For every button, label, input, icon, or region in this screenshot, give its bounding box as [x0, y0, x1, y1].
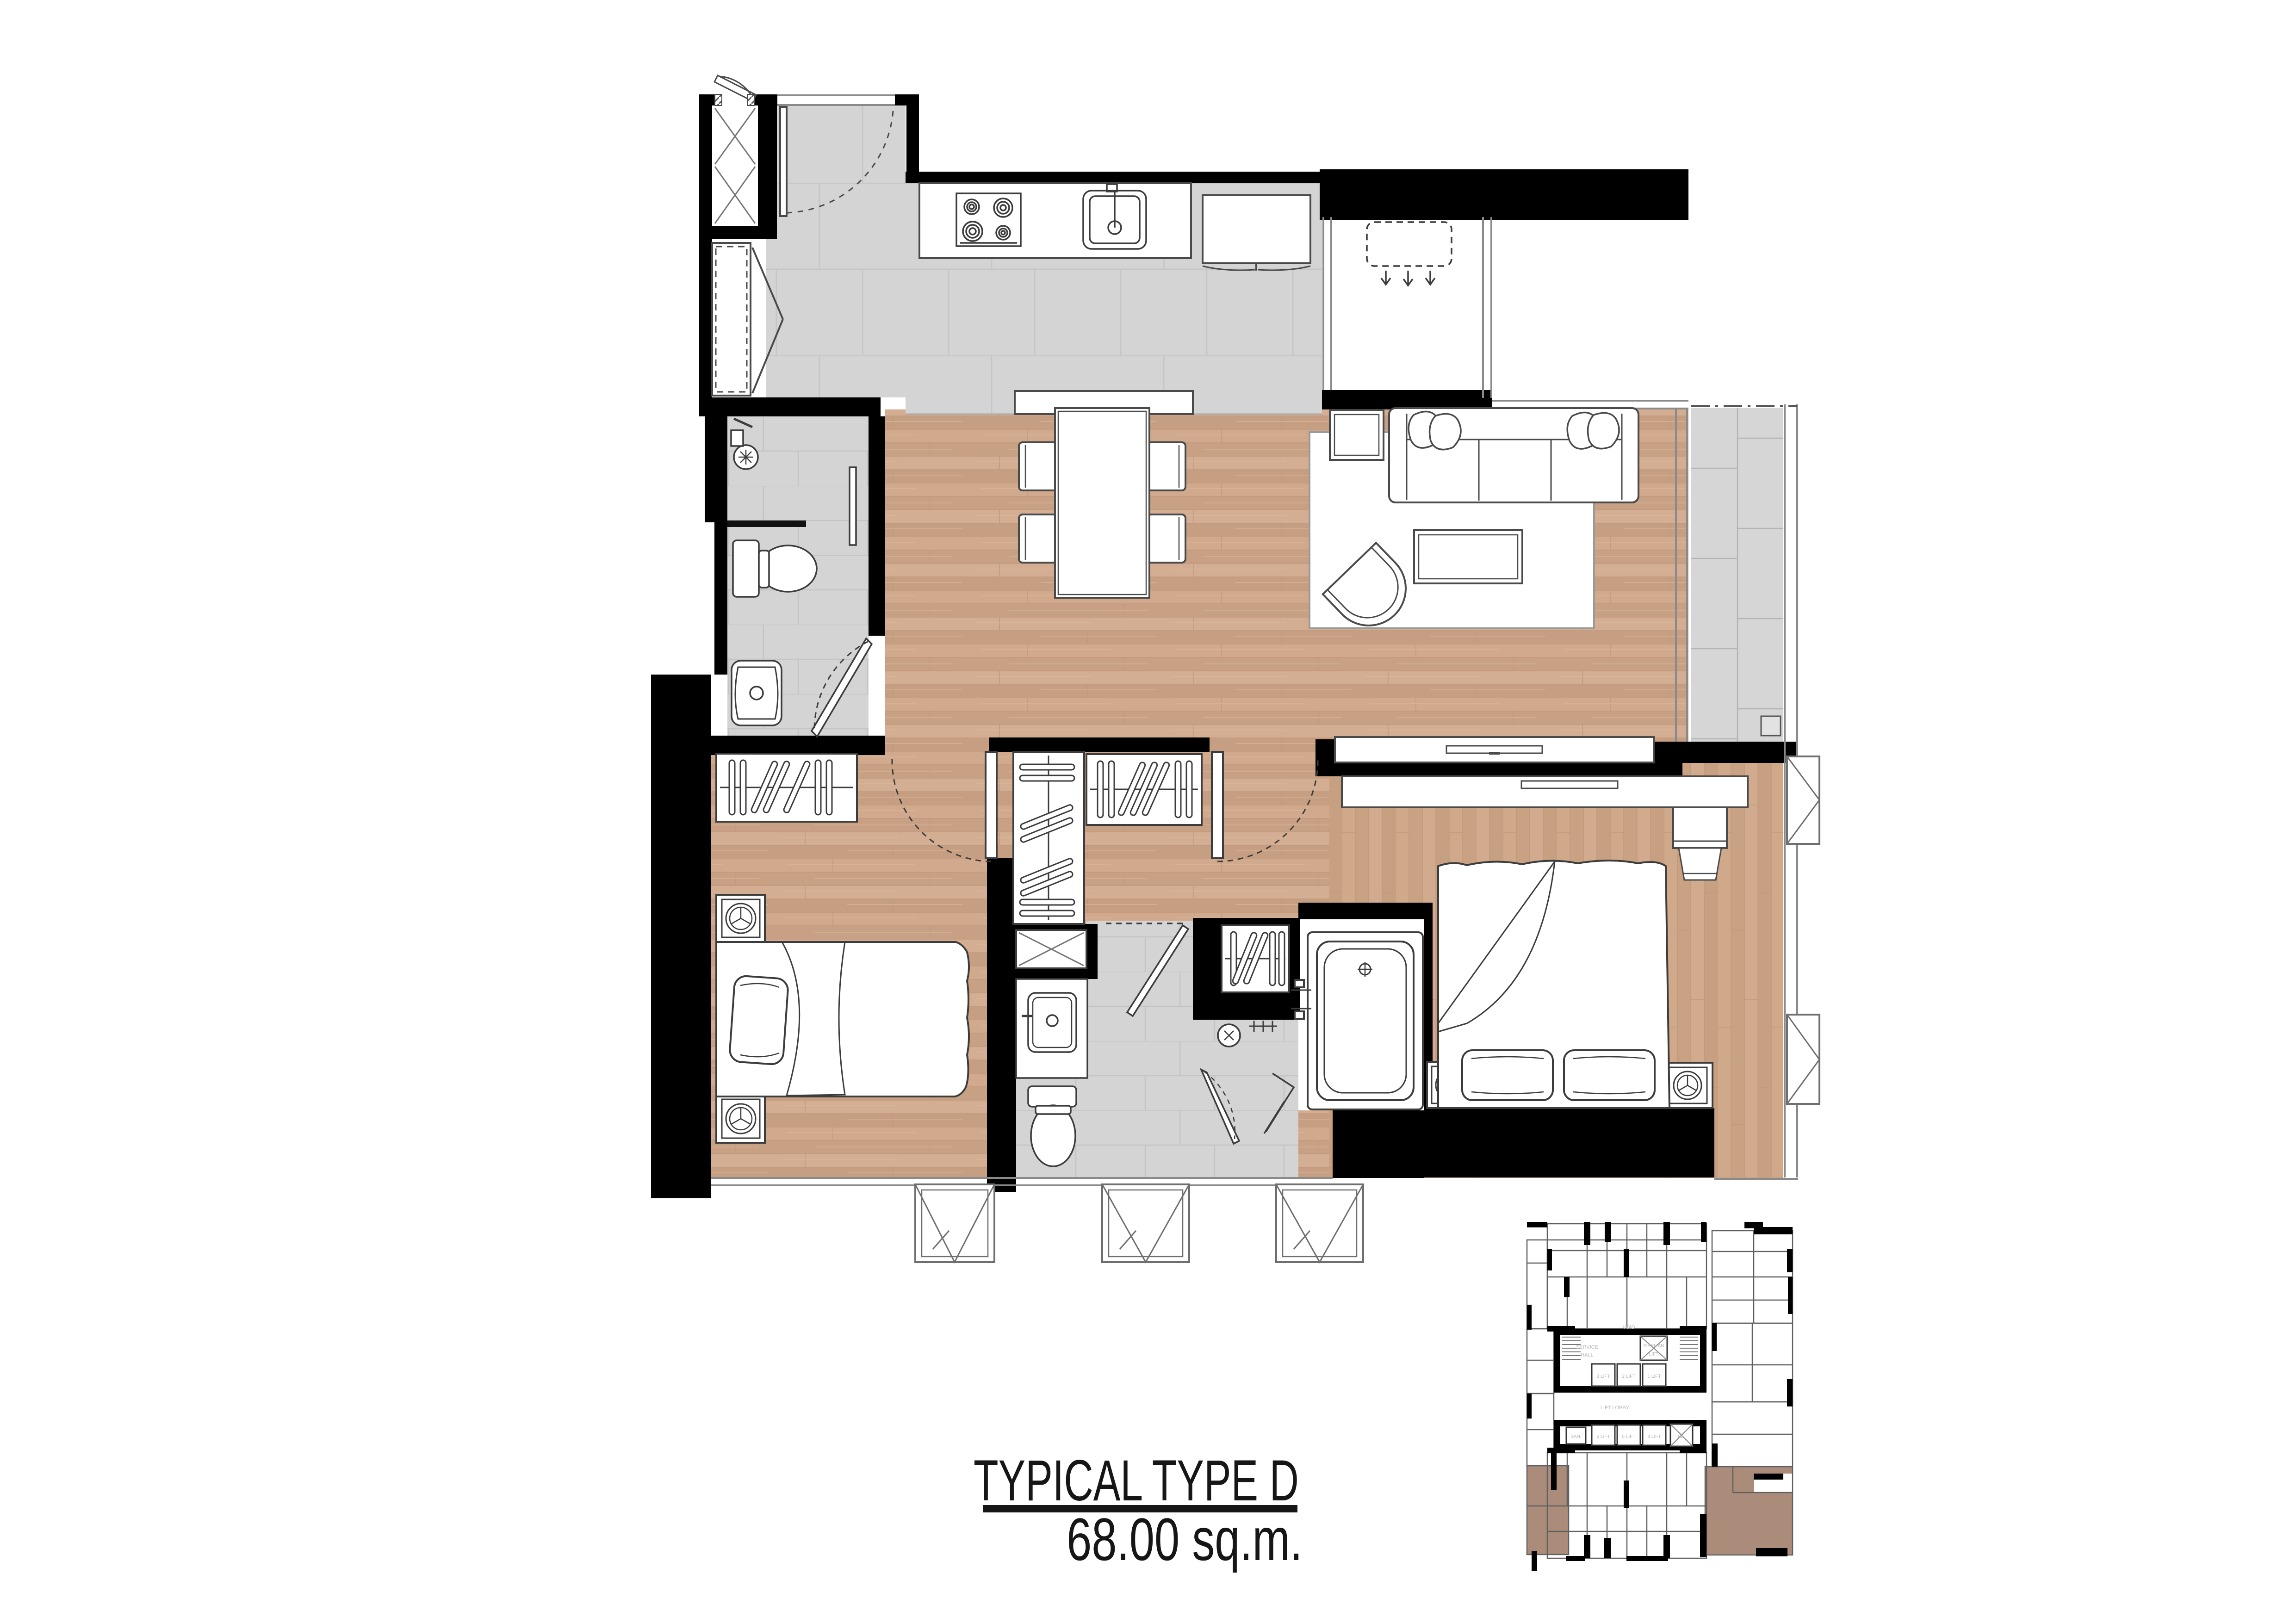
svg-text:3 LIFT: 3 LIFT: [1597, 1374, 1610, 1379]
svg-text:LIFT: LIFT: [1649, 1352, 1659, 1357]
svg-text:FIREMAN: FIREMAN: [1644, 1344, 1664, 1349]
svg-text:HALL: HALL: [1581, 1352, 1594, 1358]
svg-text:68.00 sq.m.: 68.00 sq.m.: [1067, 1505, 1303, 1573]
svg-text:6 LIFT: 6 LIFT: [1597, 1434, 1610, 1439]
svg-text:EE.: EE.: [1678, 1434, 1685, 1439]
svg-text:SAN.: SAN.: [1570, 1434, 1581, 1439]
svg-text:5 LIFT: 5 LIFT: [1622, 1434, 1636, 1439]
svg-text:SERVICE: SERVICE: [1576, 1344, 1598, 1350]
svg-text:1 LIFT: 1 LIFT: [1648, 1374, 1661, 1379]
svg-text:LIFT LOBBY: LIFT LOBBY: [1601, 1405, 1630, 1411]
svg-text:VOID: VOID: [1623, 1325, 1635, 1330]
svg-text:TYPICAL TYPE D: TYPICAL TYPE D: [974, 1449, 1299, 1513]
svg-text:4 LIFT: 4 LIFT: [1648, 1434, 1661, 1439]
svg-text:2 LIFT: 2 LIFT: [1622, 1374, 1636, 1379]
